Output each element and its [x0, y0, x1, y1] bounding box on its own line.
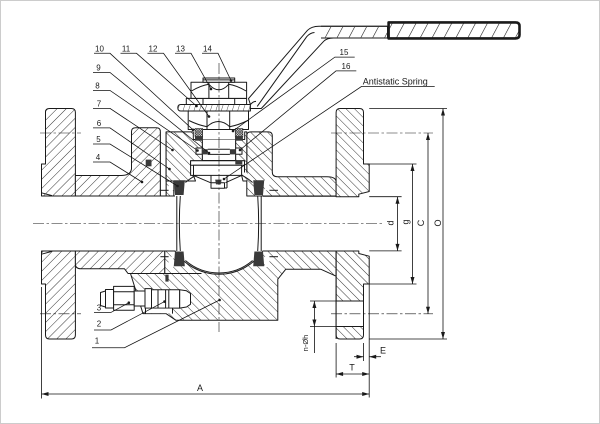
svg-text:g: g	[401, 219, 411, 224]
svg-text:7: 7	[97, 99, 102, 108]
svg-text:n-Øh: n-Øh	[301, 335, 310, 352]
svg-text:T: T	[349, 363, 355, 373]
svg-text:5: 5	[96, 135, 101, 144]
svg-text:6: 6	[97, 119, 102, 128]
svg-text:3: 3	[97, 303, 102, 312]
svg-text:14: 14	[203, 45, 212, 54]
svg-text:O: O	[433, 219, 443, 226]
svg-text:16: 16	[342, 62, 351, 71]
svg-text:12: 12	[149, 45, 158, 54]
svg-text:13: 13	[176, 45, 185, 54]
svg-text:1: 1	[95, 337, 100, 346]
svg-text:9: 9	[96, 64, 101, 73]
svg-text:15: 15	[340, 48, 349, 57]
svg-text:2: 2	[97, 320, 102, 329]
svg-text:10: 10	[95, 45, 104, 54]
svg-text:A: A	[197, 383, 203, 393]
svg-text:C: C	[416, 219, 426, 226]
svg-text:Antistatic Spring: Antistatic Spring	[363, 77, 428, 87]
svg-text:11: 11	[122, 45, 131, 54]
svg-text:E: E	[380, 346, 386, 356]
svg-text:4: 4	[96, 153, 101, 162]
svg-text:8: 8	[95, 82, 100, 91]
svg-text:d: d	[386, 220, 396, 225]
